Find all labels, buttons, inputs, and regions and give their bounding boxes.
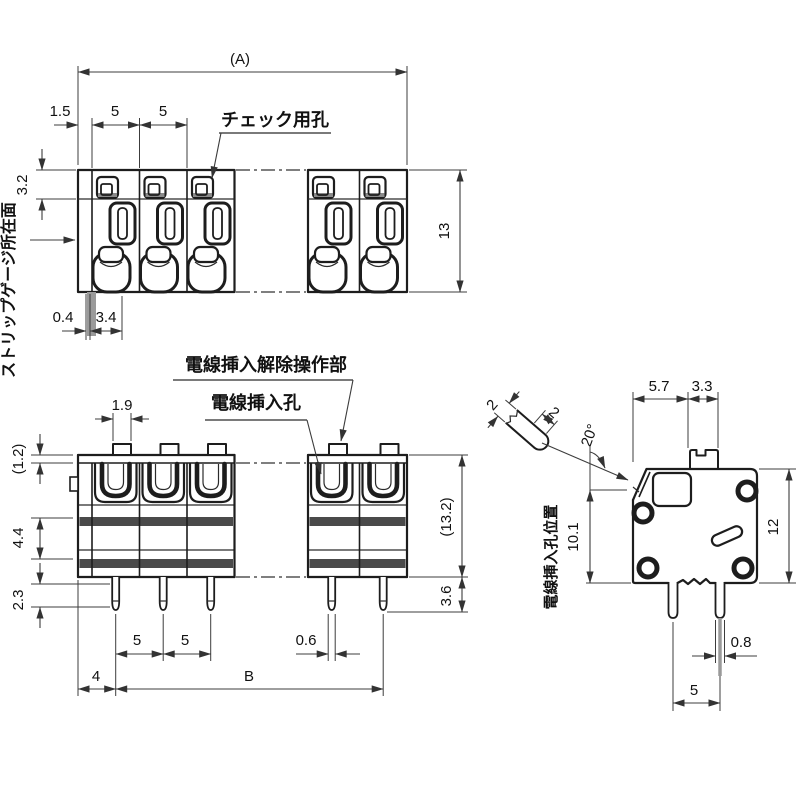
- strip-gauge-face-label: ストリップゲージ所在面: [0, 202, 18, 378]
- dim-tab-width-label: 1.9: [112, 397, 133, 414]
- wire-hole-label: 電線挿入孔: [211, 392, 301, 414]
- dim-edge-offset-label: 1.5: [50, 103, 71, 120]
- dim-sv-pin-pitch-label: 5: [690, 682, 698, 699]
- dim-overall-width-label: (A): [230, 51, 250, 68]
- dim-fv-pitch2-label: 5: [181, 632, 189, 649]
- check-hole-label: チェック用孔: [221, 110, 329, 131]
- dim-span-label: B: [244, 668, 254, 685]
- dim-gauge-width-label: 3.4: [96, 309, 117, 326]
- side-view: 2 2 20° 5.7 3.3 12 10.1 電線挿入孔位置: [473, 367, 796, 711]
- dim-lever-depth-label: 3.3: [692, 378, 713, 395]
- dim-fv-height-label: (13.2): [438, 497, 455, 536]
- front-view: 1.9 (1.2) 4.4 2.3 5 5 0.6: [10, 354, 468, 696]
- top-view: (A) 1.5 5 5 3.2 13 0.4 3.4 ストリップゲージ所在面: [0, 51, 467, 378]
- dim-pin-length-label: 3.6: [438, 586, 455, 607]
- dim-plate-height-label: (1.2): [10, 444, 27, 475]
- dim-check-hole-depth-label: 3.2: [14, 175, 31, 196]
- dim-sv-height-label: 12: [765, 519, 782, 536]
- dim-hole-height-label: 10.1: [565, 522, 582, 551]
- drawing-canvas: (A) 1.5 5 5 3.2 13 0.4 3.4 ストリップゲージ所在面: [0, 0, 800, 800]
- dim-gauge-offset-label: 0.4: [53, 309, 74, 326]
- technical-drawing: (A) 1.5 5 5 3.2 13 0.4 3.4 ストリップゲージ所在面: [0, 0, 800, 800]
- dim-depth-label: 13: [436, 223, 453, 240]
- dim-pitch2-label: 5: [159, 103, 167, 120]
- dim-pitch1-label: 5: [111, 103, 119, 120]
- dim-entry-angle-label: 20°: [578, 422, 602, 449]
- dim-pin-width-label: 0.6: [296, 632, 317, 649]
- dim-end-offset-label: 4: [92, 668, 100, 685]
- wire-hole-pos-label: 電線挿入孔位置: [542, 504, 560, 609]
- dim-front-depth-label: 5.7: [649, 378, 670, 395]
- dim-band-gap-label: 4.4: [10, 528, 27, 549]
- dim-wire-dia2-label: 2: [483, 396, 501, 413]
- wire-release-label: 電線挿入解除操作部: [185, 354, 347, 376]
- dim-pin-upper-label: 2.3: [10, 590, 27, 611]
- dim-fv-pitch1-label: 5: [133, 632, 141, 649]
- dim-sv-pin-width-label: 0.8: [731, 634, 752, 651]
